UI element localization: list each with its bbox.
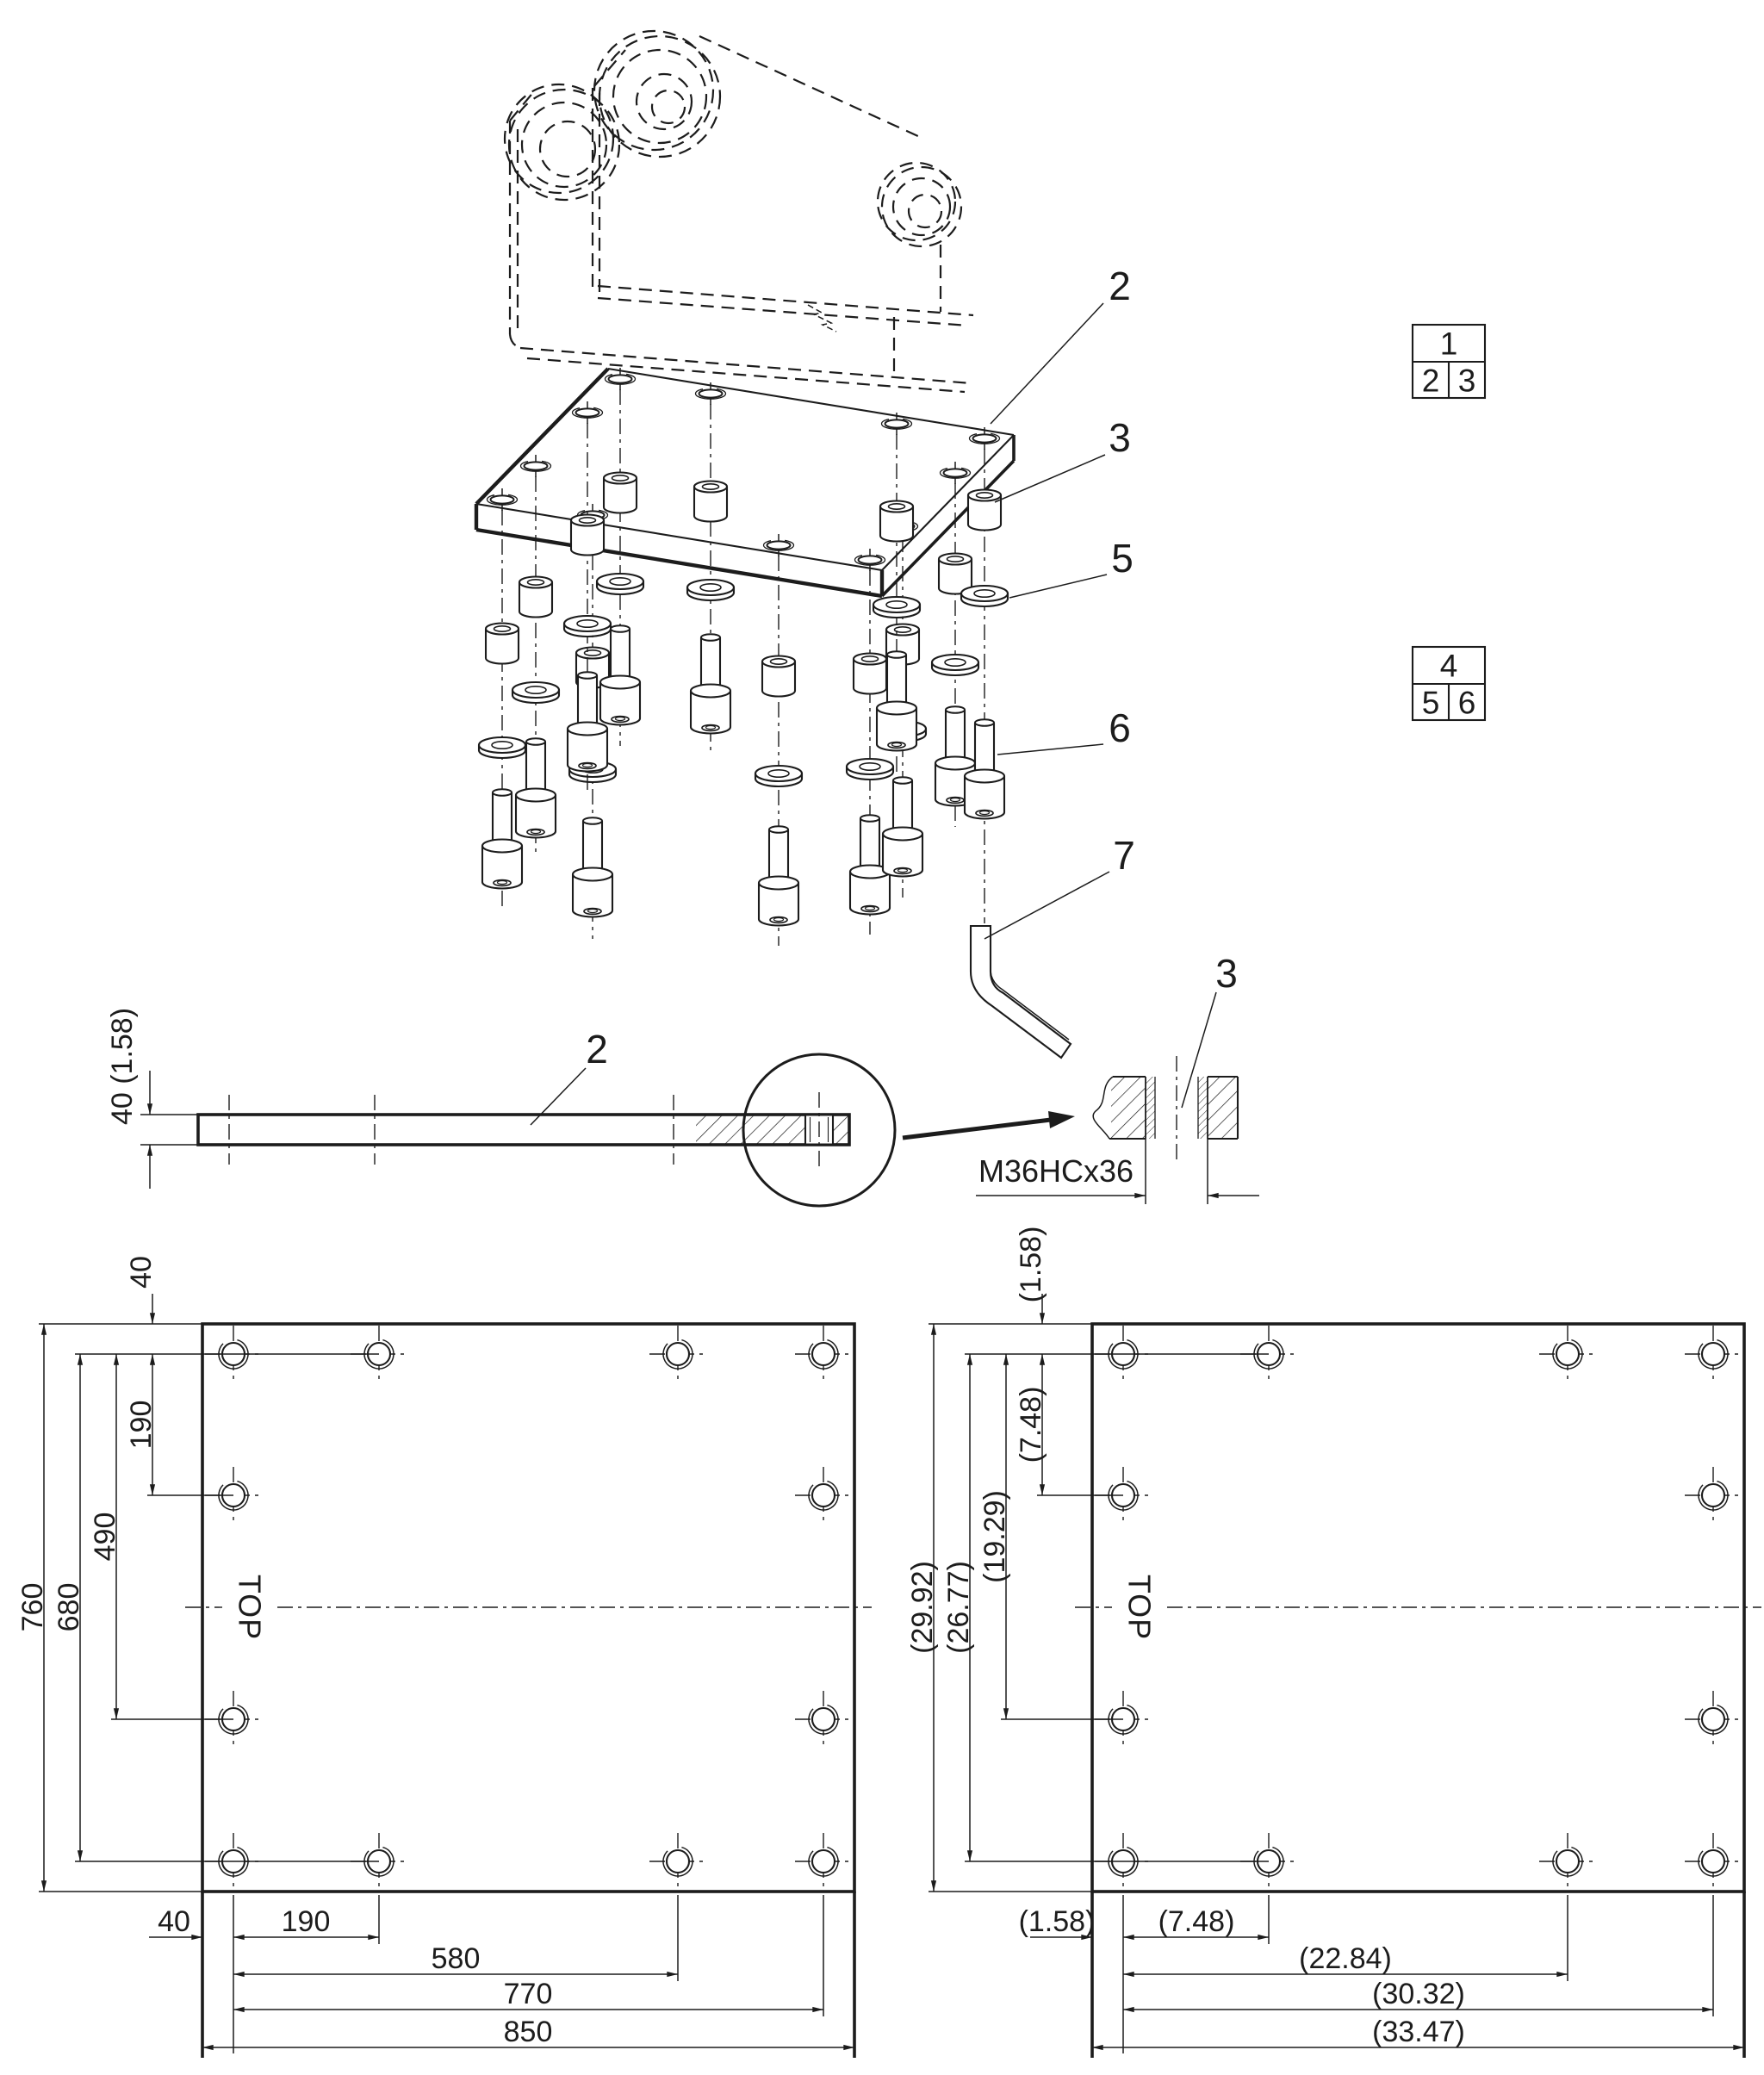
ref-table-2: 4 5 6 [1413, 647, 1485, 721]
detail-arrow [903, 1111, 1075, 1138]
ref-table-1-child-a: 2 [1422, 363, 1440, 399]
dim-in-h-748: (7.48) [1158, 1905, 1235, 1938]
thickness-dimension: 40 (1.58) [106, 1008, 198, 1189]
dim-in-v-2992: (29.92) [906, 1561, 939, 1654]
dim-mm-h-40: 40 [158, 1905, 190, 1938]
quick-coupler-outline [505, 31, 973, 392]
dim-in-v-2677: (26.77) [942, 1561, 975, 1654]
plan-view-mm: TOP 40 190 490 680 760 [16, 1256, 872, 2058]
callout-hex-key-label: 7 [1113, 833, 1135, 878]
ref-table-2-child-a: 5 [1422, 686, 1440, 721]
dim-in-h-2284: (22.84) [1299, 1942, 1392, 1975]
callout-bolt-label: 6 [1109, 705, 1131, 750]
fastener-stack [755, 556, 802, 946]
fastener-stack [847, 570, 893, 935]
dims-vertical-mm: 40 190 490 680 760 [16, 1256, 379, 1892]
orientation-label-mm: TOP [233, 1575, 268, 1640]
callout-washer: 5 [1009, 536, 1134, 598]
hex-key [971, 926, 1071, 1058]
dim-mm-v-190: 190 [125, 1401, 158, 1450]
dim-mm-h-770: 770 [504, 1978, 553, 2010]
thread-spec-label: M36HCx36 [978, 1153, 1134, 1189]
dim-in-h-158: (1.58) [1019, 1905, 1096, 1938]
coupler-boss-right [878, 163, 961, 246]
thread-detail-view: 3 M36HCx36 [976, 951, 1259, 1204]
dim-in-h-3032: (30.32) [1372, 1978, 1465, 2010]
fastener-stack [961, 449, 1008, 923]
dims-horizontal-inch: (1.58) (7.48) (22.84) (30.32) (33.47) [1019, 1892, 1744, 2058]
dim-mm-h-190: 190 [282, 1905, 331, 1938]
ref-table-2-parent: 4 [1440, 649, 1458, 684]
ref-table-1-parent: 1 [1440, 326, 1458, 362]
dim-mm-v-40: 40 [125, 1256, 158, 1289]
side-view-plate-callout: 2 [531, 1027, 608, 1125]
dim-mm-h-850: 850 [504, 2016, 553, 2048]
adapter-plate-iso [476, 368, 1014, 596]
ref-table-1-child-b: 3 [1458, 363, 1476, 399]
dim-mm-v-490: 490 [89, 1513, 121, 1562]
serration-marks [808, 305, 836, 332]
section-hatch-left [696, 1116, 805, 1144]
callout-hex-key: 7 [984, 833, 1135, 939]
callout-spacer-label: 3 [1109, 415, 1131, 460]
dim-in-v-1929: (19.29) [978, 1490, 1011, 1583]
exploded-view: 2 3 5 6 7 [476, 31, 1135, 1058]
dim-in-v-158: (1.58) [1015, 1227, 1047, 1303]
callout-washer-label: 5 [1111, 536, 1134, 581]
ref-table-2-child-b: 6 [1458, 686, 1476, 721]
drawing-canvas: 2 3 5 6 7 1 2 3 4 5 6 [0, 0, 1764, 2075]
coupler-boss-left [505, 84, 619, 200]
plan-view-inch: TOP (1.58) (7.48) (19.29) (26.77) (29.92… [906, 1227, 1761, 2058]
dim-in-v-748: (7.48) [1015, 1387, 1047, 1463]
section-hatch-right [833, 1116, 848, 1144]
dim-mm-v-760: 760 [16, 1583, 49, 1632]
dims-horizontal-mm: 40 190 580 770 850 [149, 1892, 854, 2058]
detail-callout-thread-label: 3 [1215, 951, 1238, 996]
dims-vertical-inch: (1.58) (7.48) (19.29) (26.77) (29.92) [906, 1227, 1269, 1892]
dim-in-h-3347: (33.47) [1372, 2016, 1465, 2048]
ref-table-1: 1 2 3 [1413, 325, 1485, 399]
dim-thickness: 40 (1.58) [106, 1008, 139, 1125]
orientation-label-inch: TOP [1122, 1575, 1158, 1640]
dim-mm-v-680: 680 [53, 1583, 85, 1632]
callout-plate: 2 [991, 264, 1131, 424]
callout-plate-label: 2 [1109, 264, 1131, 308]
dim-mm-h-580: 580 [432, 1942, 481, 1975]
fastener-stack [479, 510, 525, 909]
side-view: 40 (1.58) 2 [106, 1008, 1075, 1206]
callout-bolt: 6 [997, 705, 1131, 755]
thread-spec-dimension: M36HCx36 [976, 1139, 1259, 1204]
technical-drawing-page: 2 3 5 6 7 1 2 3 4 5 6 [0, 0, 1764, 2075]
side-callout-plate-label: 2 [586, 1027, 608, 1072]
